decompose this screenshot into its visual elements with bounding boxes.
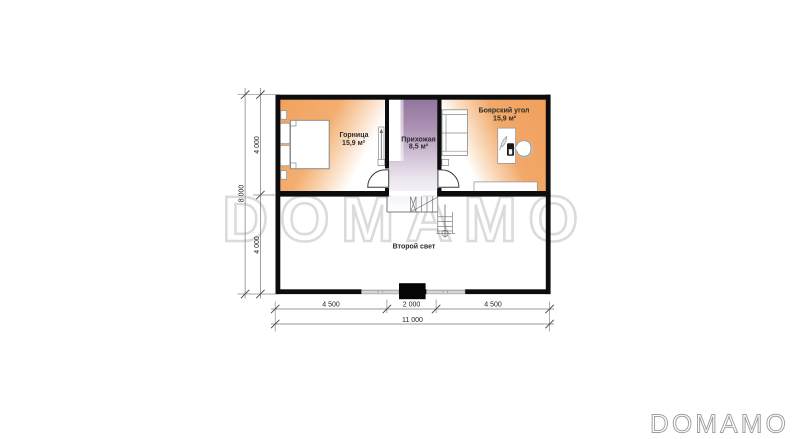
svg-text:Второй свет: Второй свет <box>393 242 436 250</box>
svg-text:4 500: 4 500 <box>322 301 340 308</box>
svg-text:8 000: 8 000 <box>239 185 246 203</box>
svg-text:11 000: 11 000 <box>402 317 423 324</box>
svg-text:Боярский угол: Боярский угол <box>479 107 530 115</box>
svg-text:Прихожая: Прихожая <box>401 136 436 143</box>
svg-text:2 000: 2 000 <box>403 301 421 308</box>
svg-text:15,9 м²: 15,9 м² <box>493 115 517 122</box>
svg-text:4 000: 4 000 <box>254 136 261 154</box>
svg-text:Горница: Горница <box>340 132 369 139</box>
svg-text:4 500: 4 500 <box>484 301 502 308</box>
svg-text:4 000: 4 000 <box>254 236 261 254</box>
svg-text:8,5 м²: 8,5 м² <box>409 144 429 151</box>
svg-text:DOMAMO: DOMAMO <box>650 409 789 439</box>
svg-text:15,9 м²: 15,9 м² <box>342 140 366 147</box>
